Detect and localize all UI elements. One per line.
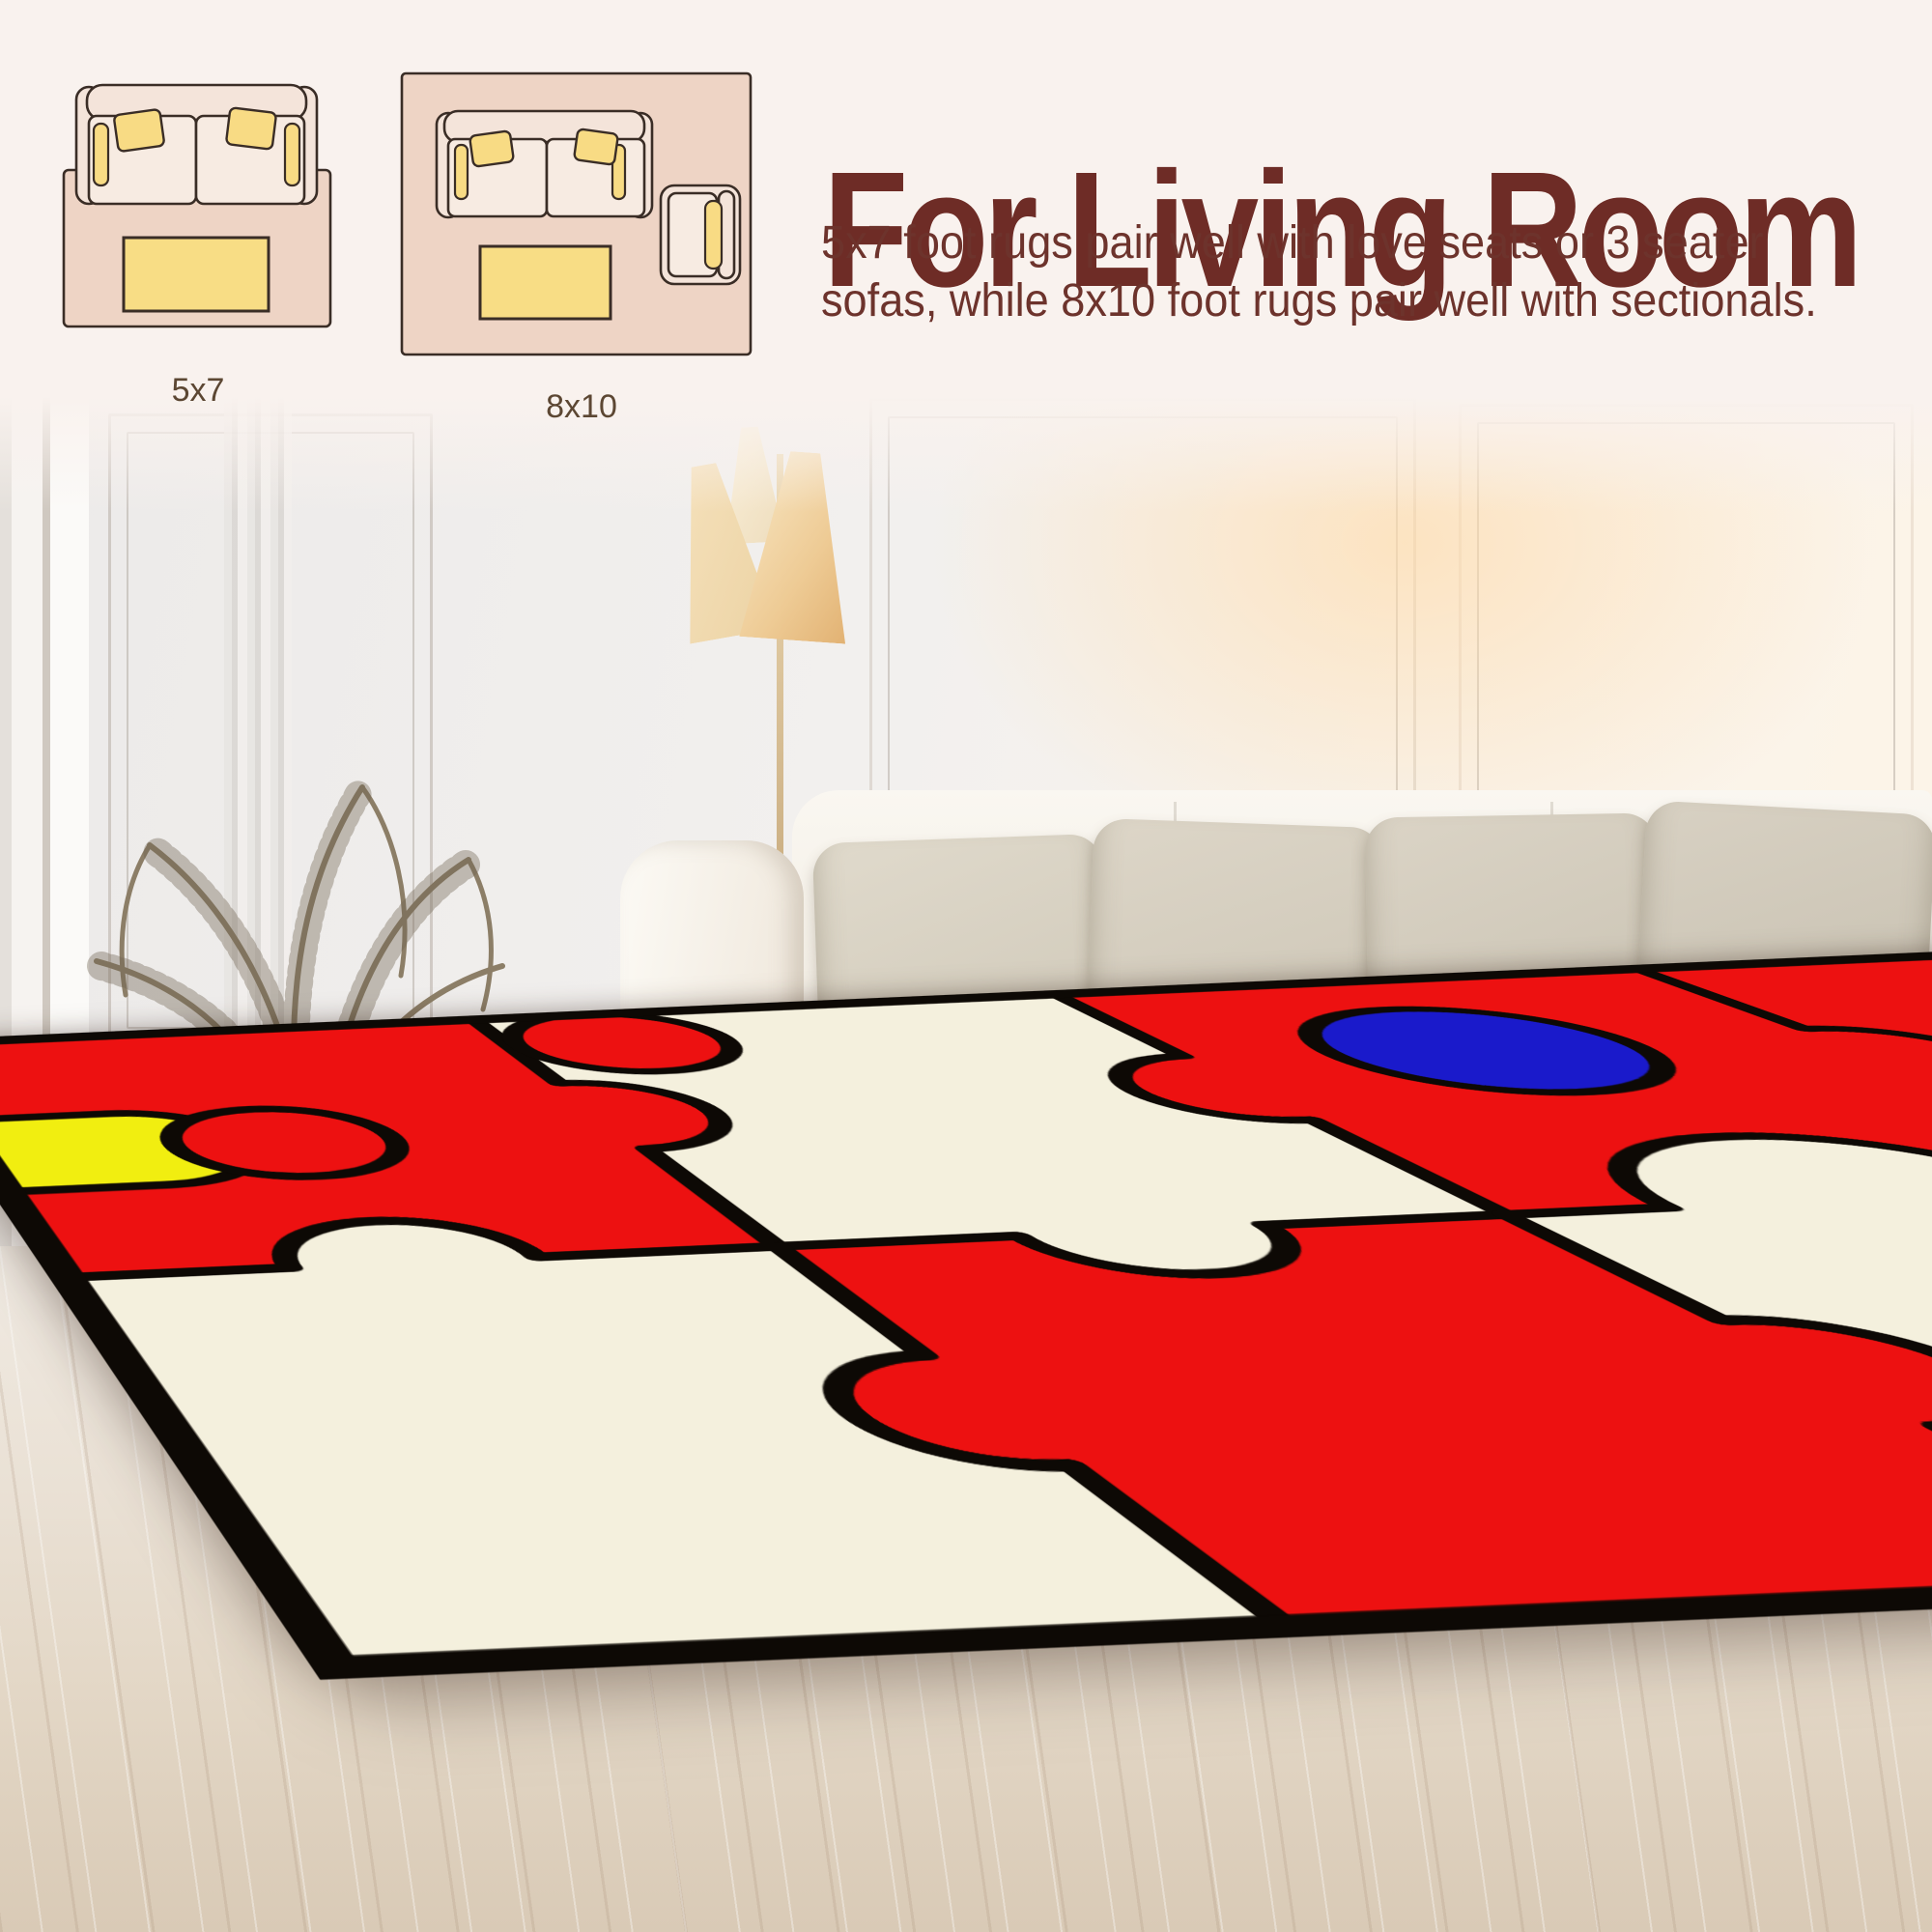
coffee-table-icon	[124, 238, 269, 311]
rug-layout-diagram-5x7	[48, 39, 338, 338]
puzzle-rug	[0, 940, 1932, 1717]
header-band: For Living Room 5x7 foot rugs pair well …	[0, 0, 1932, 391]
diagram-label-5x7: 5x7	[145, 372, 251, 410]
description-text: 5x7 foot rugs pair well with love seats …	[821, 214, 1817, 331]
puzzle-rug-graphic	[0, 940, 1932, 1680]
product-infographic: For Living Room 5x7 foot rugs pair well …	[0, 0, 1932, 1932]
description-line: sofas, while 8x10 foot rugs pair well wi…	[821, 272, 1817, 330]
armchair-icon	[661, 185, 740, 284]
coffee-table-icon	[480, 246, 611, 319]
description-line: 5x7 foot rugs pair well with love seats …	[821, 214, 1817, 272]
header-photo-fade	[0, 386, 1932, 512]
rug-layout-diagram-8x10	[386, 39, 753, 367]
diagram-label-8x10: 8x10	[519, 388, 644, 426]
